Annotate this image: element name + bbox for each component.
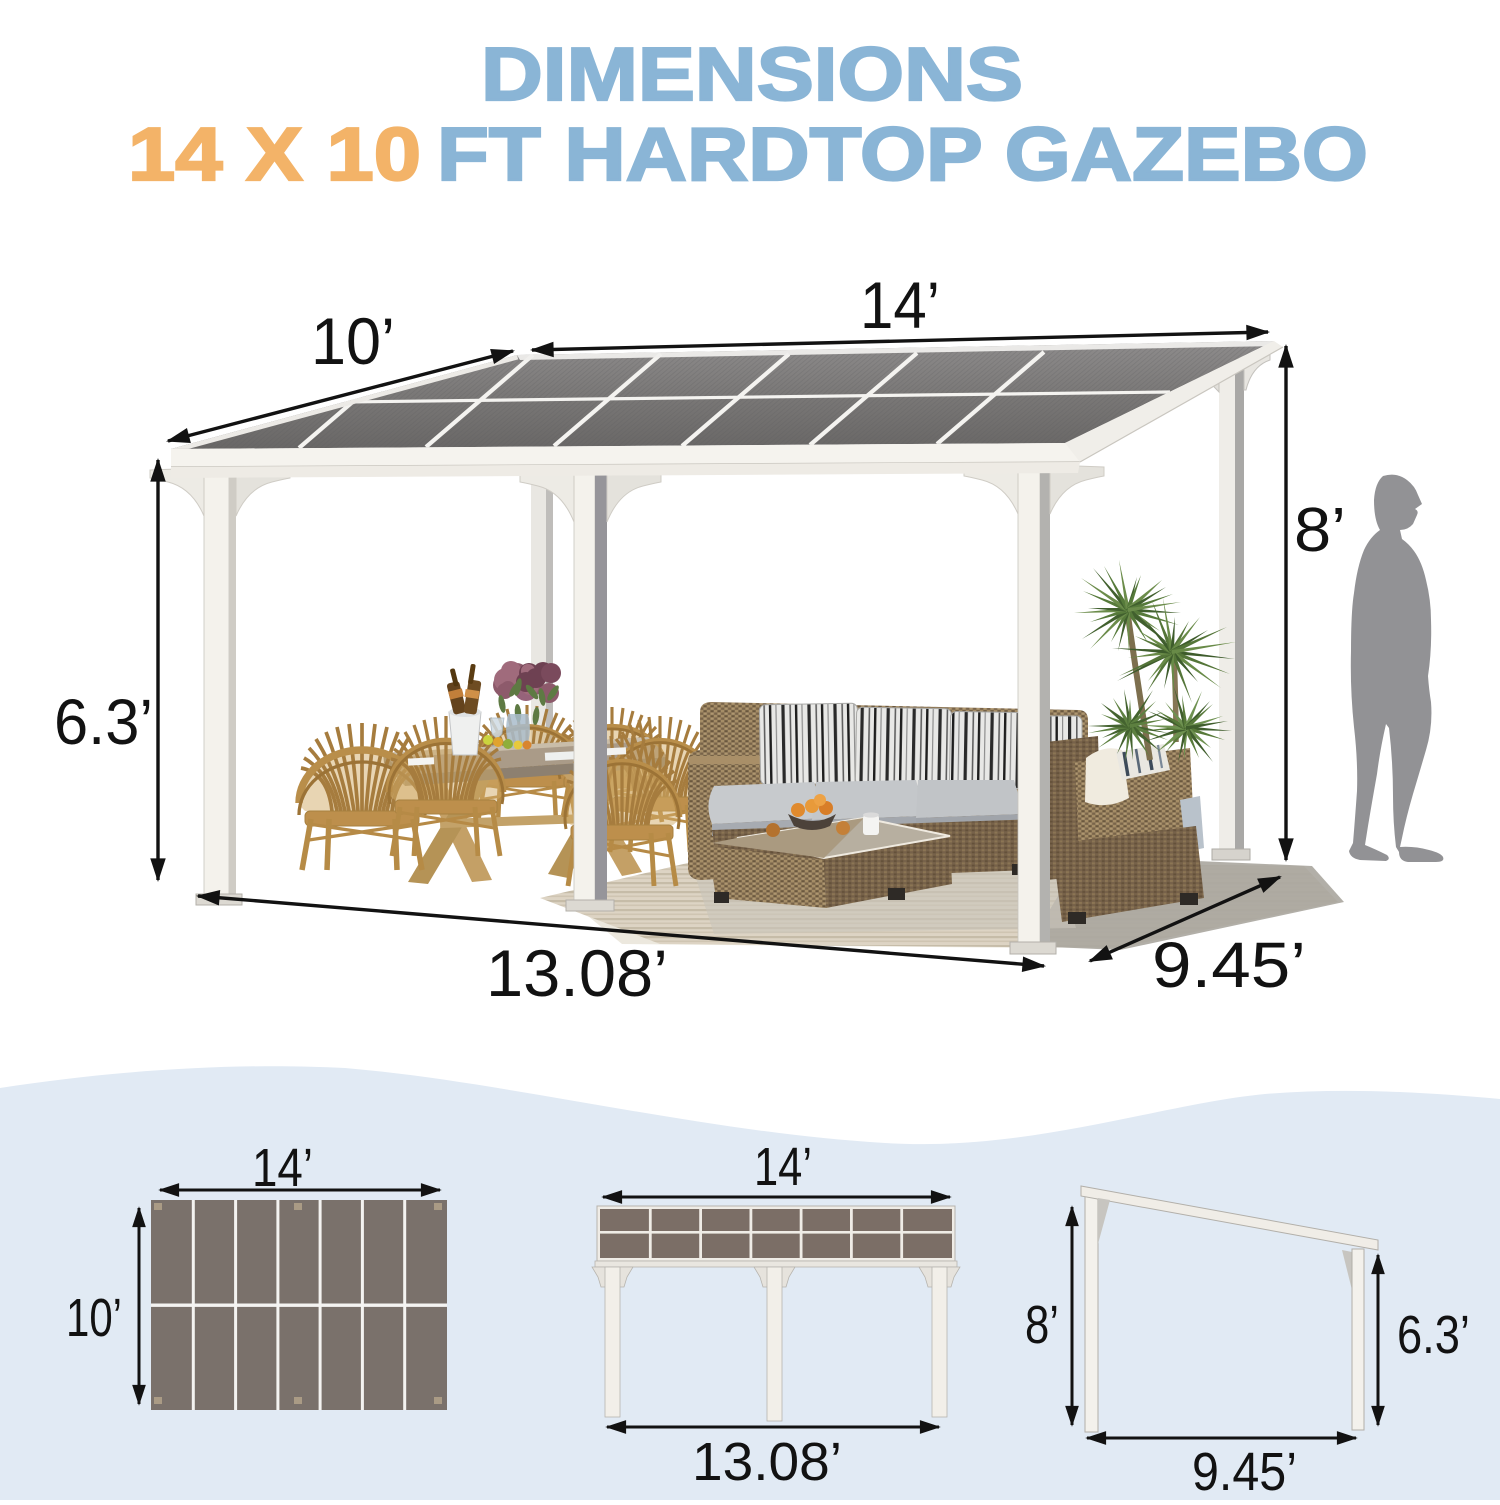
svg-text:14 X 10: 14 X 10 bbox=[128, 112, 421, 196]
svg-text:6.3’: 6.3’ bbox=[54, 686, 153, 758]
svg-text:9.45’: 9.45’ bbox=[1152, 929, 1306, 1001]
svg-text:13.08’: 13.08’ bbox=[692, 1432, 842, 1492]
svg-text:FT HARDTOP GAZEBO: FT HARDTOP GAZEBO bbox=[437, 112, 1368, 196]
svg-text:8’: 8’ bbox=[1294, 496, 1346, 565]
svg-text:14’: 14’ bbox=[860, 268, 940, 342]
svg-text:6.3’: 6.3’ bbox=[1397, 1305, 1470, 1365]
svg-text:14’: 14’ bbox=[252, 1138, 313, 1198]
svg-text:10’: 10’ bbox=[66, 1288, 122, 1348]
svg-text:DIMENSIONS: DIMENSIONS bbox=[481, 32, 1023, 116]
svg-text:14’: 14’ bbox=[754, 1137, 812, 1197]
svg-text:9.45’: 9.45’ bbox=[1192, 1442, 1297, 1500]
svg-text:13.08’: 13.08’ bbox=[486, 936, 668, 1010]
svg-text:8’: 8’ bbox=[1025, 1295, 1059, 1355]
svg-text:10’: 10’ bbox=[311, 304, 395, 378]
